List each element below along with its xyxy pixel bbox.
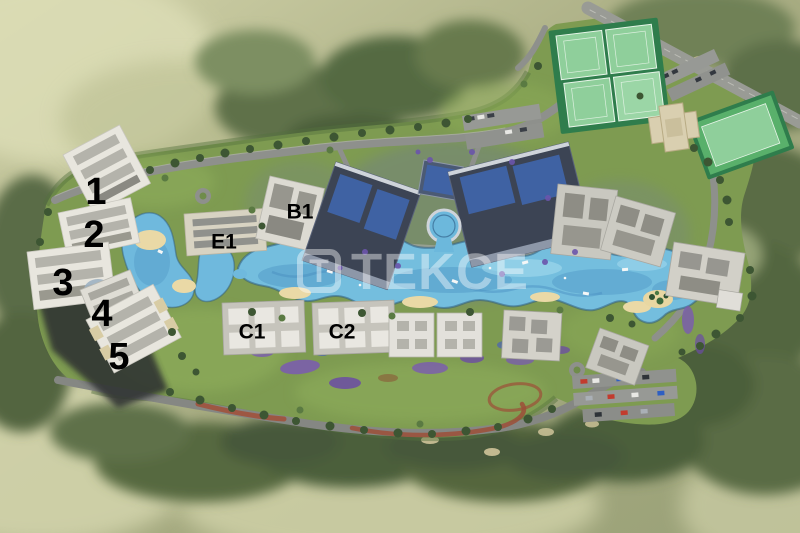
building-label-5: 5 xyxy=(108,338,129,376)
building-label-b1: B1 xyxy=(287,202,314,223)
building-south-twin-west xyxy=(389,313,434,357)
watermark-brand: TEKCE xyxy=(351,242,529,301)
masterplan-render: 1 2 3 4 5 B1 E1 C1 C2 T TEKCE xyxy=(0,0,800,533)
tennis-courts xyxy=(548,17,670,134)
building-label-3: 3 xyxy=(52,264,73,302)
roundabout-south-island xyxy=(574,367,581,374)
building-label-c2: C2 xyxy=(329,322,356,343)
building-label-e1: E1 xyxy=(211,232,237,253)
watermark: T TEKCE xyxy=(297,243,529,299)
building-label-4: 4 xyxy=(91,295,112,333)
building-label-2: 2 xyxy=(83,216,104,254)
building-label-c1: C1 xyxy=(239,322,266,343)
building-south-twin-east xyxy=(437,313,482,357)
building-label-1: 1 xyxy=(85,173,106,211)
building-south-mid xyxy=(501,310,561,361)
roundabout-north-island xyxy=(200,193,207,200)
watermark-logo: T xyxy=(297,249,341,293)
